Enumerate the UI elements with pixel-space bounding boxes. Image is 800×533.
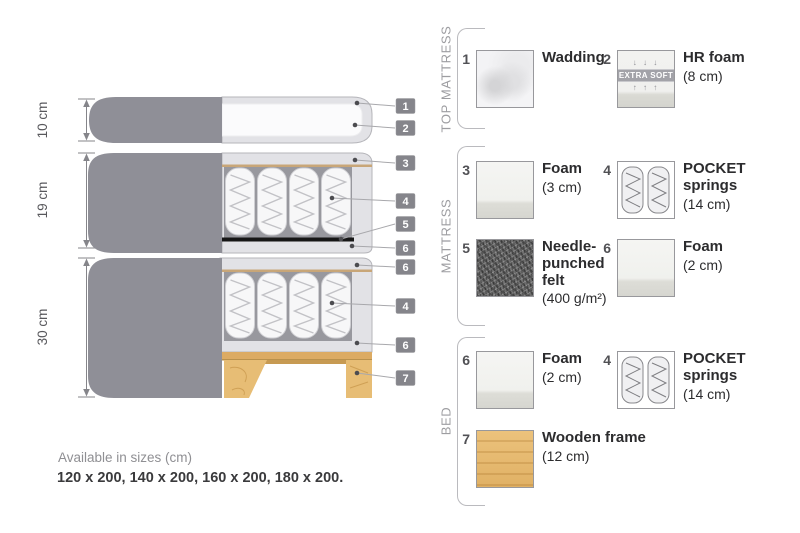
callout-2: 2	[396, 121, 415, 136]
svg-text:7: 7	[402, 373, 408, 385]
bed-base-cross-section	[88, 258, 372, 398]
legend-item-hr-foam: 2 ↓ ↓ ↓ EXTRA SOFT ↑ ↑ ↑ HR foam (8 cm)	[597, 50, 745, 108]
section-title-mattress: MATTRESS	[439, 199, 454, 274]
item-size: (2 cm)	[542, 368, 582, 386]
felt-thumbnail	[476, 239, 534, 297]
item-number: 4	[597, 162, 611, 178]
item-name: Wadding	[542, 50, 605, 67]
svg-text:6: 6	[402, 243, 408, 255]
item-size: (3 cm)	[542, 178, 582, 196]
legend-item-needle-punched-felt: 5 Needle- punched felt (400 g/m²)	[456, 239, 607, 308]
pocket-springs-icon	[618, 162, 674, 218]
callout-1: 1	[396, 99, 415, 114]
item-number: 3	[456, 162, 470, 178]
callout-6b: 6	[396, 260, 415, 275]
item-number: 4	[597, 352, 611, 368]
dimension-label: 19 cm	[35, 182, 50, 219]
hr-foam-thumbnail: ↓ ↓ ↓ EXTRA SOFT ↑ ↑ ↑	[617, 50, 675, 108]
pocket-springs-thumbnail	[617, 351, 675, 409]
pocket-springs-icon	[618, 352, 674, 408]
svg-text:4: 4	[402, 301, 409, 313]
extra-soft-badge: EXTRA SOFT	[617, 69, 675, 82]
dimension-10cm: 10 cm	[35, 99, 95, 141]
dimension-label: 30 cm	[35, 309, 50, 346]
svg-text:3: 3	[402, 158, 408, 170]
svg-text:5: 5	[402, 219, 408, 231]
item-size: (2 cm)	[683, 256, 723, 274]
mattress-cross-section	[88, 153, 372, 253]
hr-foam-core	[222, 104, 362, 136]
wood-thumbnail	[476, 430, 534, 488]
item-name: Foam	[542, 351, 582, 368]
item-size: (12 cm)	[542, 447, 646, 465]
bed-base-cover	[88, 258, 222, 398]
foam-thumbnail	[476, 351, 534, 409]
callout-6c: 6	[396, 338, 415, 353]
dimension-19cm: 19 cm	[35, 153, 95, 248]
arrows-up-icon: ↑ ↑ ↑	[633, 83, 659, 93]
callout-7: 7	[396, 371, 415, 386]
svg-text:6: 6	[402, 262, 408, 274]
item-size: (14 cm)	[683, 385, 746, 403]
top-mattress-cross-section	[89, 97, 372, 143]
item-size: (14 cm)	[683, 195, 746, 213]
section-title-bed: BED	[439, 407, 454, 436]
item-name: Foam	[683, 239, 723, 256]
legend-item-wadding: 1 Wadding	[456, 50, 605, 108]
item-number: 7	[456, 431, 470, 447]
svg-text:6: 6	[402, 340, 408, 352]
item-name: HR foam	[683, 50, 745, 67]
legend-item-pocket-springs: 4 POCKET springs (14 cm)	[597, 161, 746, 219]
dimension-label: 10 cm	[35, 102, 50, 139]
item-size: (8 cm)	[683, 67, 745, 85]
sizes-values: 120 x 200, 140 x 200, 160 x 200, 180 x 2…	[57, 470, 343, 486]
item-name: Foam	[542, 161, 582, 178]
sizes-caption: Available in sizes (cm)	[58, 450, 192, 465]
pocket-springs-thumbnail	[617, 161, 675, 219]
needle-punched-felt-layer	[222, 238, 354, 242]
callout-5: 5	[396, 217, 415, 232]
item-number: 5	[456, 240, 470, 256]
item-name: Wooden frame	[542, 430, 646, 447]
callout-4: 4	[396, 194, 415, 209]
legend-item-foam-3cm: 3 Foam (3 cm)	[456, 161, 582, 219]
item-name: POCKET springs	[683, 161, 746, 195]
wadding-thumbnail	[476, 50, 534, 108]
svg-text:1: 1	[402, 101, 408, 113]
legend-item-bed-pocket-springs: 4 POCKET springs (14 cm)	[597, 351, 746, 409]
foam-thumbnail	[476, 161, 534, 219]
svg-text:4: 4	[402, 196, 409, 208]
dimension-30cm: 30 cm	[35, 258, 95, 397]
mattress-cover	[88, 153, 222, 253]
item-number: 2	[597, 51, 611, 67]
item-name: POCKET springs	[683, 351, 746, 385]
top-mattress-cover	[89, 97, 222, 143]
svg-text:2: 2	[402, 123, 408, 135]
item-number: 1	[456, 51, 470, 67]
section-title-top-mattress: TOP MATTRESS	[439, 26, 454, 133]
callout-3: 3	[396, 156, 415, 171]
legend-item-bed-foam: 6 Foam (2 cm)	[456, 351, 582, 409]
callout-4b: 4	[396, 299, 415, 314]
callout-6: 6	[396, 241, 415, 256]
legend-item-foam-2cm: 6 Foam (2 cm)	[597, 239, 723, 297]
item-number: 6	[597, 240, 611, 256]
foam-thumbnail	[617, 239, 675, 297]
wooden-frame	[220, 352, 372, 398]
infographic-page: 10 cm 19 cm 30 cm	[0, 0, 800, 533]
item-number: 6	[456, 352, 470, 368]
arrows-down-icon: ↓ ↓ ↓	[633, 58, 659, 68]
legend-item-wooden-frame: 7 Wooden frame (12 cm)	[456, 430, 646, 488]
